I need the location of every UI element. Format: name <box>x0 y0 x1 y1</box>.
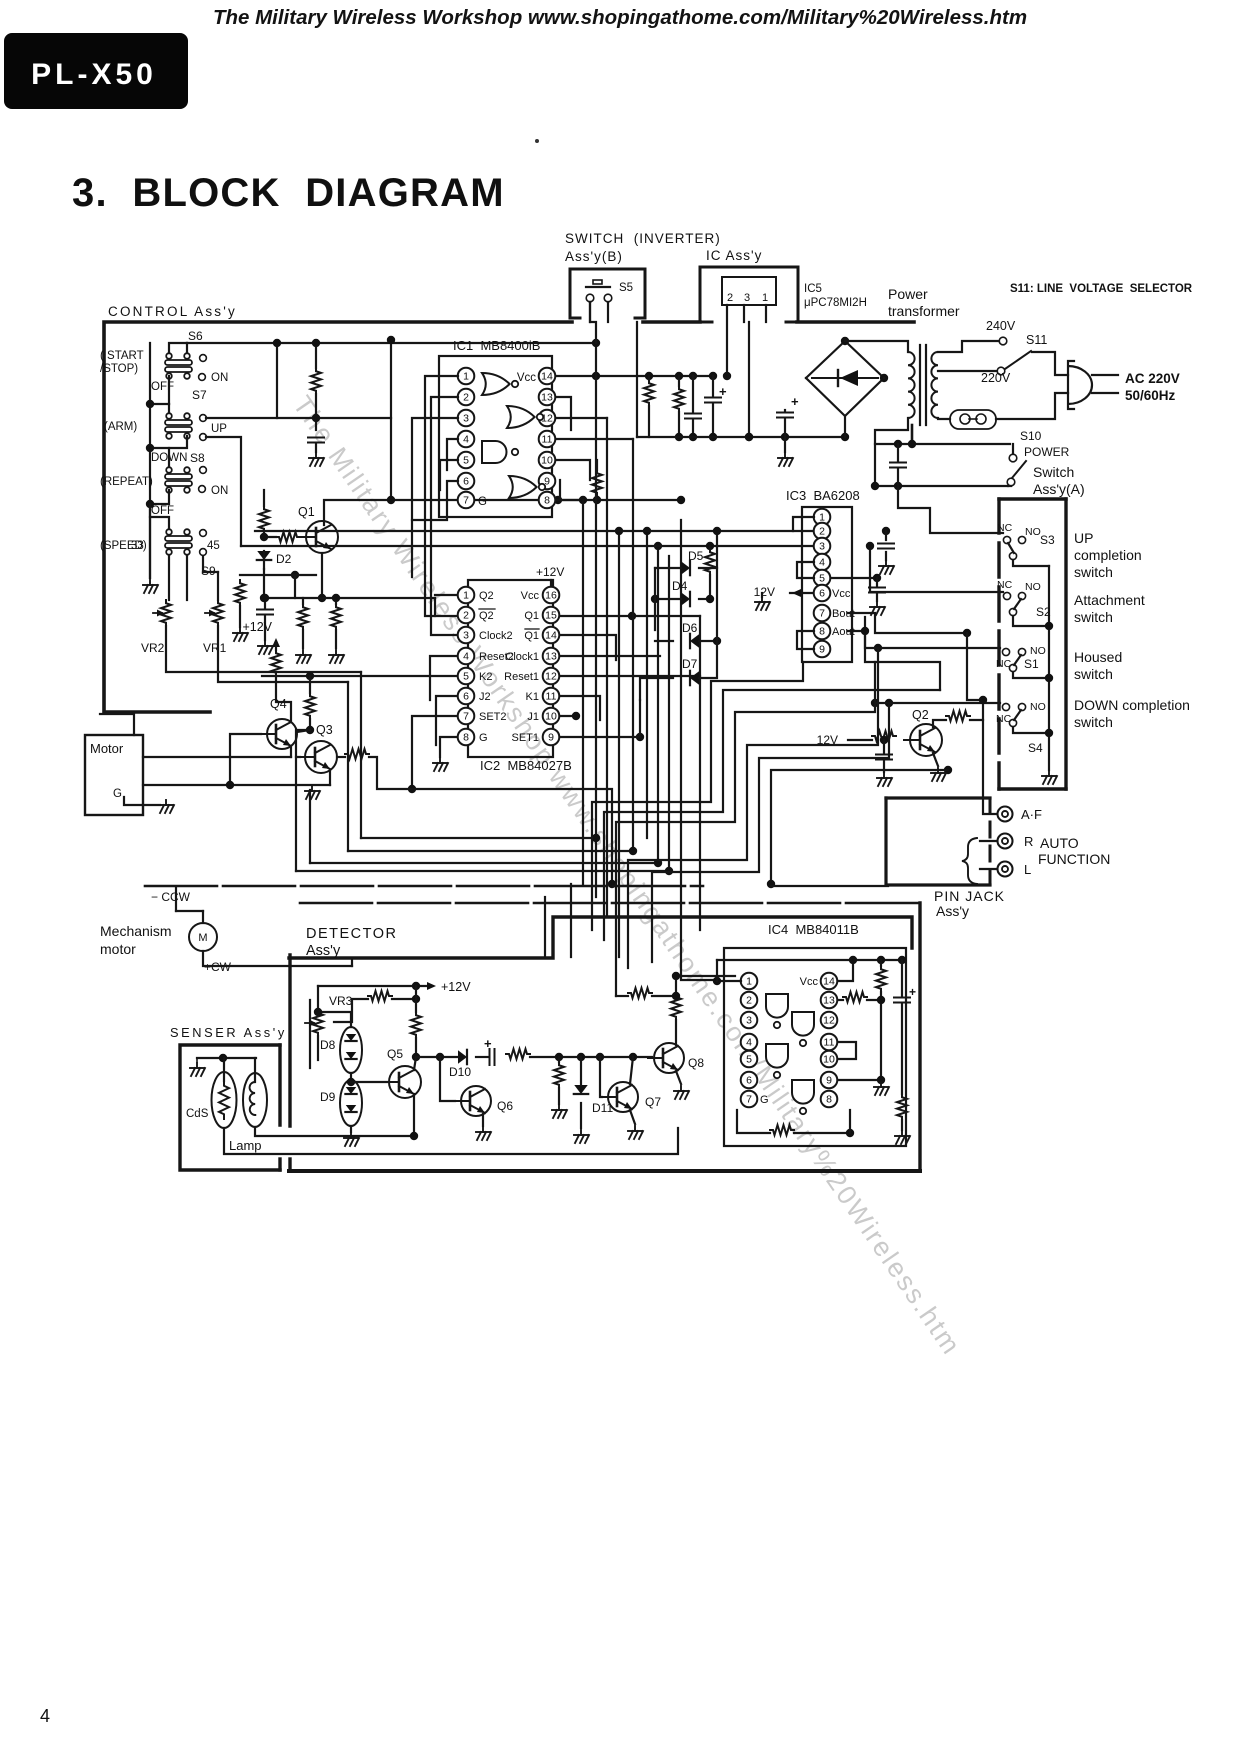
svg-text:6: 6 <box>463 691 469 703</box>
svg-text:A·F: A·F <box>1021 807 1042 822</box>
svg-text:completion: completion <box>1074 547 1142 563</box>
svg-text:Ass'y(A): Ass'y(A) <box>1033 481 1085 497</box>
svg-text:L: L <box>1024 862 1031 877</box>
svg-text:Attachment: Attachment <box>1074 592 1145 608</box>
svg-text:CONTROL Ass'y: CONTROL Ass'y <box>108 304 237 319</box>
svg-text:15: 15 <box>545 610 557 622</box>
svg-text:50/60Hz: 50/60Hz <box>1125 388 1176 403</box>
svg-text:NO: NO <box>1030 645 1046 657</box>
svg-text:Q1: Q1 <box>524 630 539 642</box>
svg-text:NO: NO <box>1025 581 1041 593</box>
svg-text:Housed: Housed <box>1074 649 1122 665</box>
svg-text:2: 2 <box>727 292 733 304</box>
svg-text:IC Ass'y: IC Ass'y <box>706 248 762 263</box>
svg-text:4: 4 <box>463 434 469 446</box>
svg-text:IC3 BA6208: IC3 BA6208 <box>786 488 860 503</box>
svg-text:/STOP): /STOP) <box>100 363 138 375</box>
svg-text:6: 6 <box>463 476 469 488</box>
svg-text:12V: 12V <box>817 733 838 747</box>
svg-text:12V: 12V <box>754 585 775 599</box>
svg-text:DETECTOR: DETECTOR <box>306 926 398 942</box>
svg-text:G: G <box>113 788 122 800</box>
svg-text:8: 8 <box>463 732 469 744</box>
svg-text:14: 14 <box>823 976 835 988</box>
svg-text:13: 13 <box>541 392 553 404</box>
svg-text:Q2: Q2 <box>479 590 494 602</box>
svg-text:CdS: CdS <box>186 1108 209 1120</box>
svg-text:Q1: Q1 <box>524 610 539 622</box>
svg-text:Q6: Q6 <box>497 1099 513 1113</box>
svg-text:IC2 MB84027B: IC2 MB84027B <box>480 758 572 773</box>
svg-text:μPC78MI2H: μPC78MI2H <box>804 297 867 309</box>
svg-text:(ARM): (ARM) <box>104 421 137 433</box>
svg-text:(REPEAT): (REPEAT) <box>100 476 153 488</box>
svg-text:POWER: POWER <box>1024 445 1070 459</box>
svg-text:S5: S5 <box>619 282 633 294</box>
svg-text:SET1: SET1 <box>511 732 539 744</box>
svg-text:ON: ON <box>211 372 228 384</box>
svg-text:4: 4 <box>746 1037 752 1049</box>
svg-text:switch: switch <box>1074 666 1113 682</box>
svg-text:2: 2 <box>819 526 825 538</box>
svg-text:1: 1 <box>463 371 469 383</box>
svg-text:+: + <box>791 394 799 409</box>
svg-text:PIN JACK: PIN JACK <box>934 888 1005 904</box>
svg-text:8: 8 <box>826 1094 832 1106</box>
svg-text:+: + <box>909 985 916 999</box>
svg-text:Mechanism: Mechanism <box>100 923 172 939</box>
svg-text:S8: S8 <box>190 451 205 465</box>
svg-text:12: 12 <box>823 1015 835 1027</box>
svg-text:UP: UP <box>1074 530 1093 546</box>
svg-text:240V: 240V <box>986 319 1016 333</box>
svg-text:7: 7 <box>819 608 825 620</box>
svg-text:K2: K2 <box>479 671 492 683</box>
svg-text:motor: motor <box>100 941 136 957</box>
svg-text:NC: NC <box>997 522 1013 534</box>
svg-text:3: 3 <box>463 630 469 642</box>
svg-text:S4: S4 <box>1028 741 1043 755</box>
svg-text:M: M <box>198 932 207 944</box>
svg-text:VR1: VR1 <box>203 641 227 655</box>
svg-text:10: 10 <box>823 1054 835 1066</box>
svg-text:Vcc: Vcc <box>800 976 819 988</box>
svg-text:The Military Wireless Workshop: The Military Wireless Workshop www.shopi… <box>213 6 1027 29</box>
svg-text:3. BLOCK DIAGRAM: 3. BLOCK DIAGRAM <box>72 171 505 215</box>
svg-text:AUTO: AUTO <box>1040 835 1079 851</box>
svg-text:S11: LINE VOLTAGE SELECTOR: S11: LINE VOLTAGE SELECTOR <box>1010 283 1193 295</box>
svg-text:Lamp: Lamp <box>229 1138 262 1153</box>
svg-text:Q3: Q3 <box>316 723 333 737</box>
svg-text:D2: D2 <box>276 552 292 566</box>
svg-text:Q2: Q2 <box>479 610 494 622</box>
svg-text:( START: ( START <box>100 350 144 362</box>
svg-text:Q5: Q5 <box>387 1047 403 1061</box>
svg-text:+12V: +12V <box>441 980 471 994</box>
svg-text:NO: NO <box>1030 701 1046 713</box>
svg-text:S6: S6 <box>188 329 203 343</box>
svg-text:2: 2 <box>746 995 752 1007</box>
svg-text:6: 6 <box>819 588 825 600</box>
svg-text:S2: S2 <box>1036 605 1051 619</box>
svg-text:S3: S3 <box>1040 533 1055 547</box>
svg-text:switch: switch <box>1074 714 1113 730</box>
svg-text:11: 11 <box>542 434 553 446</box>
svg-text:Vcc: Vcc <box>521 590 540 602</box>
svg-text:8: 8 <box>819 626 825 638</box>
svg-text:Q1: Q1 <box>298 505 315 519</box>
svg-text:switch: switch <box>1074 564 1113 580</box>
svg-text:Reset1: Reset1 <box>504 671 539 683</box>
svg-text:14: 14 <box>545 630 557 642</box>
svg-text:3: 3 <box>744 292 750 304</box>
svg-text:OFF: OFF <box>151 505 174 517</box>
svg-text:Vcc: Vcc <box>832 588 851 600</box>
svg-text:Vcc: Vcc <box>517 372 536 384</box>
svg-text:S7: S7 <box>192 388 207 402</box>
svg-text:5: 5 <box>819 573 825 585</box>
svg-text:7: 7 <box>463 495 469 507</box>
svg-text:S1: S1 <box>1024 657 1039 671</box>
svg-text:Q4: Q4 <box>270 697 287 711</box>
svg-text:VR2: VR2 <box>141 641 165 655</box>
svg-text:NO: NO <box>1025 526 1041 538</box>
svg-text:NC: NC <box>997 579 1013 591</box>
svg-text:K1: K1 <box>526 691 539 703</box>
svg-text:D8: D8 <box>320 1038 336 1052</box>
svg-text:D9: D9 <box>320 1090 336 1104</box>
svg-text:4: 4 <box>819 557 825 569</box>
svg-text:ON: ON <box>211 485 228 497</box>
svg-text:5: 5 <box>463 671 469 683</box>
svg-text:D4: D4 <box>672 579 688 593</box>
svg-text:4: 4 <box>463 651 469 663</box>
svg-text:11: 11 <box>546 691 557 703</box>
svg-text:Motor: Motor <box>90 741 124 756</box>
svg-text:8: 8 <box>544 495 550 507</box>
svg-text:5: 5 <box>463 455 469 467</box>
svg-text:9: 9 <box>819 644 825 656</box>
svg-text:S11: S11 <box>1026 333 1047 347</box>
svg-text:10: 10 <box>545 711 557 723</box>
svg-text:13: 13 <box>545 651 557 663</box>
svg-text:11: 11 <box>824 1037 835 1049</box>
svg-text:Switch: Switch <box>1033 464 1074 480</box>
svg-text:VR3: VR3 <box>329 994 353 1008</box>
svg-text:16: 16 <box>545 590 557 602</box>
svg-text:FUNCTION: FUNCTION <box>1038 851 1110 867</box>
svg-text:SENSER Ass'y: SENSER Ass'y <box>170 1025 287 1040</box>
svg-text:1: 1 <box>762 292 768 304</box>
svg-text:SWITCH (INVERTER): SWITCH (INVERTER) <box>565 231 721 246</box>
svg-text:IC5: IC5 <box>804 283 822 295</box>
svg-text:10: 10 <box>541 455 553 467</box>
svg-text:45: 45 <box>207 540 220 552</box>
svg-text:3: 3 <box>746 1015 752 1027</box>
svg-text:G: G <box>479 732 488 744</box>
svg-text:G: G <box>760 1094 769 1106</box>
svg-text:6: 6 <box>746 1075 752 1087</box>
svg-text:9: 9 <box>548 732 554 744</box>
svg-text:220V: 220V <box>981 371 1011 385</box>
svg-text:AC 220V: AC 220V <box>1125 371 1180 386</box>
svg-text:Q8: Q8 <box>688 1056 704 1070</box>
svg-text:12: 12 <box>545 671 557 683</box>
svg-text:Power: Power <box>888 286 928 302</box>
svg-text:13: 13 <box>823 995 835 1007</box>
svg-text:PL-X50: PL-X50 <box>31 58 157 91</box>
svg-text:UP: UP <box>211 423 227 435</box>
svg-text:transformer: transformer <box>888 303 960 319</box>
svg-text:D10: D10 <box>449 1065 471 1079</box>
svg-text:switch: switch <box>1074 609 1113 625</box>
svg-text:3: 3 <box>819 541 825 553</box>
svg-text:DOWN completion: DOWN completion <box>1074 697 1190 713</box>
svg-text:3: 3 <box>463 413 469 425</box>
svg-text:+: + <box>719 384 727 399</box>
svg-text:S10: S10 <box>1020 429 1042 443</box>
svg-text:1: 1 <box>746 976 752 988</box>
svg-text:Clock2: Clock2 <box>479 630 513 642</box>
svg-text:OFF: OFF <box>151 381 174 393</box>
svg-text:33: 33 <box>131 540 144 552</box>
svg-text:D7: D7 <box>682 657 698 671</box>
svg-text:14: 14 <box>541 371 553 383</box>
svg-text:+12V: +12V <box>536 565 564 579</box>
svg-text:G: G <box>478 496 487 508</box>
svg-text:Ass'y(B): Ass'y(B) <box>565 249 623 264</box>
svg-text:+: + <box>484 1036 492 1051</box>
svg-text:7: 7 <box>746 1094 752 1106</box>
svg-text:Ass'y: Ass'y <box>936 903 969 919</box>
svg-text:Q7: Q7 <box>645 1095 661 1109</box>
svg-text:9: 9 <box>826 1075 832 1087</box>
svg-text:− CCW: − CCW <box>151 890 191 904</box>
svg-text:J1: J1 <box>527 711 539 723</box>
svg-text:Q2: Q2 <box>912 708 929 722</box>
svg-text:Ass'y: Ass'y <box>306 943 341 959</box>
svg-text:5: 5 <box>746 1054 752 1066</box>
svg-text:Clock1: Clock1 <box>505 651 539 663</box>
svg-text:SET2: SET2 <box>479 711 507 723</box>
svg-text:4: 4 <box>40 1706 50 1726</box>
svg-text:7: 7 <box>463 711 469 723</box>
svg-text:IC1 MB8400iB: IC1 MB8400iB <box>453 338 540 353</box>
svg-text:1: 1 <box>463 590 469 602</box>
svg-text:2: 2 <box>463 392 469 404</box>
svg-text:J2: J2 <box>479 691 491 703</box>
svg-text:2: 2 <box>463 610 469 622</box>
svg-text:+12V: +12V <box>242 620 272 634</box>
svg-text:IC4 MB84011B: IC4 MB84011B <box>768 922 859 937</box>
svg-text:R: R <box>1024 834 1033 849</box>
